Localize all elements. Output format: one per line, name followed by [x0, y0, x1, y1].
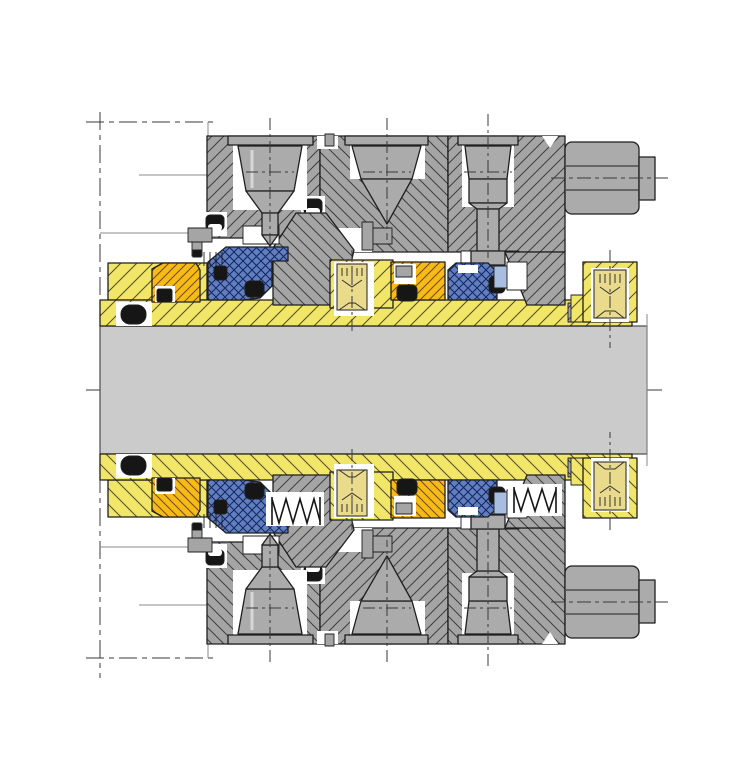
stuffing-box-outline-bottom: [100, 547, 208, 658]
lower-half-assembly-mirrored: [100, 432, 668, 666]
upper-half-assembly: [100, 114, 668, 348]
seal-ring-o-ring: [157, 289, 172, 302]
seal-cross-section-drawing: [0, 0, 731, 768]
stuffing-box-outline-top: [100, 122, 208, 233]
sleeve-o-ring: [116, 302, 152, 326]
bellows-black-insert: [214, 266, 227, 280]
coil-spring-outboard: [508, 484, 562, 516]
gland-hex-bolt: [551, 142, 668, 214]
outboard-seal-stage: [391, 262, 527, 301]
drive-clip: [396, 266, 412, 277]
retainer-block: [373, 228, 392, 244]
bellows-o-ring: [245, 281, 264, 297]
outboard-o-ring-1: [397, 285, 417, 301]
shaft: [100, 326, 647, 454]
spring-follower: [494, 266, 507, 288]
gland-top-notch: [317, 134, 338, 149]
drive-pin: [362, 222, 373, 250]
coil-spring-inboard: [266, 492, 324, 526]
seat-plate: [507, 262, 527, 290]
drawing-canvas: [0, 0, 731, 768]
